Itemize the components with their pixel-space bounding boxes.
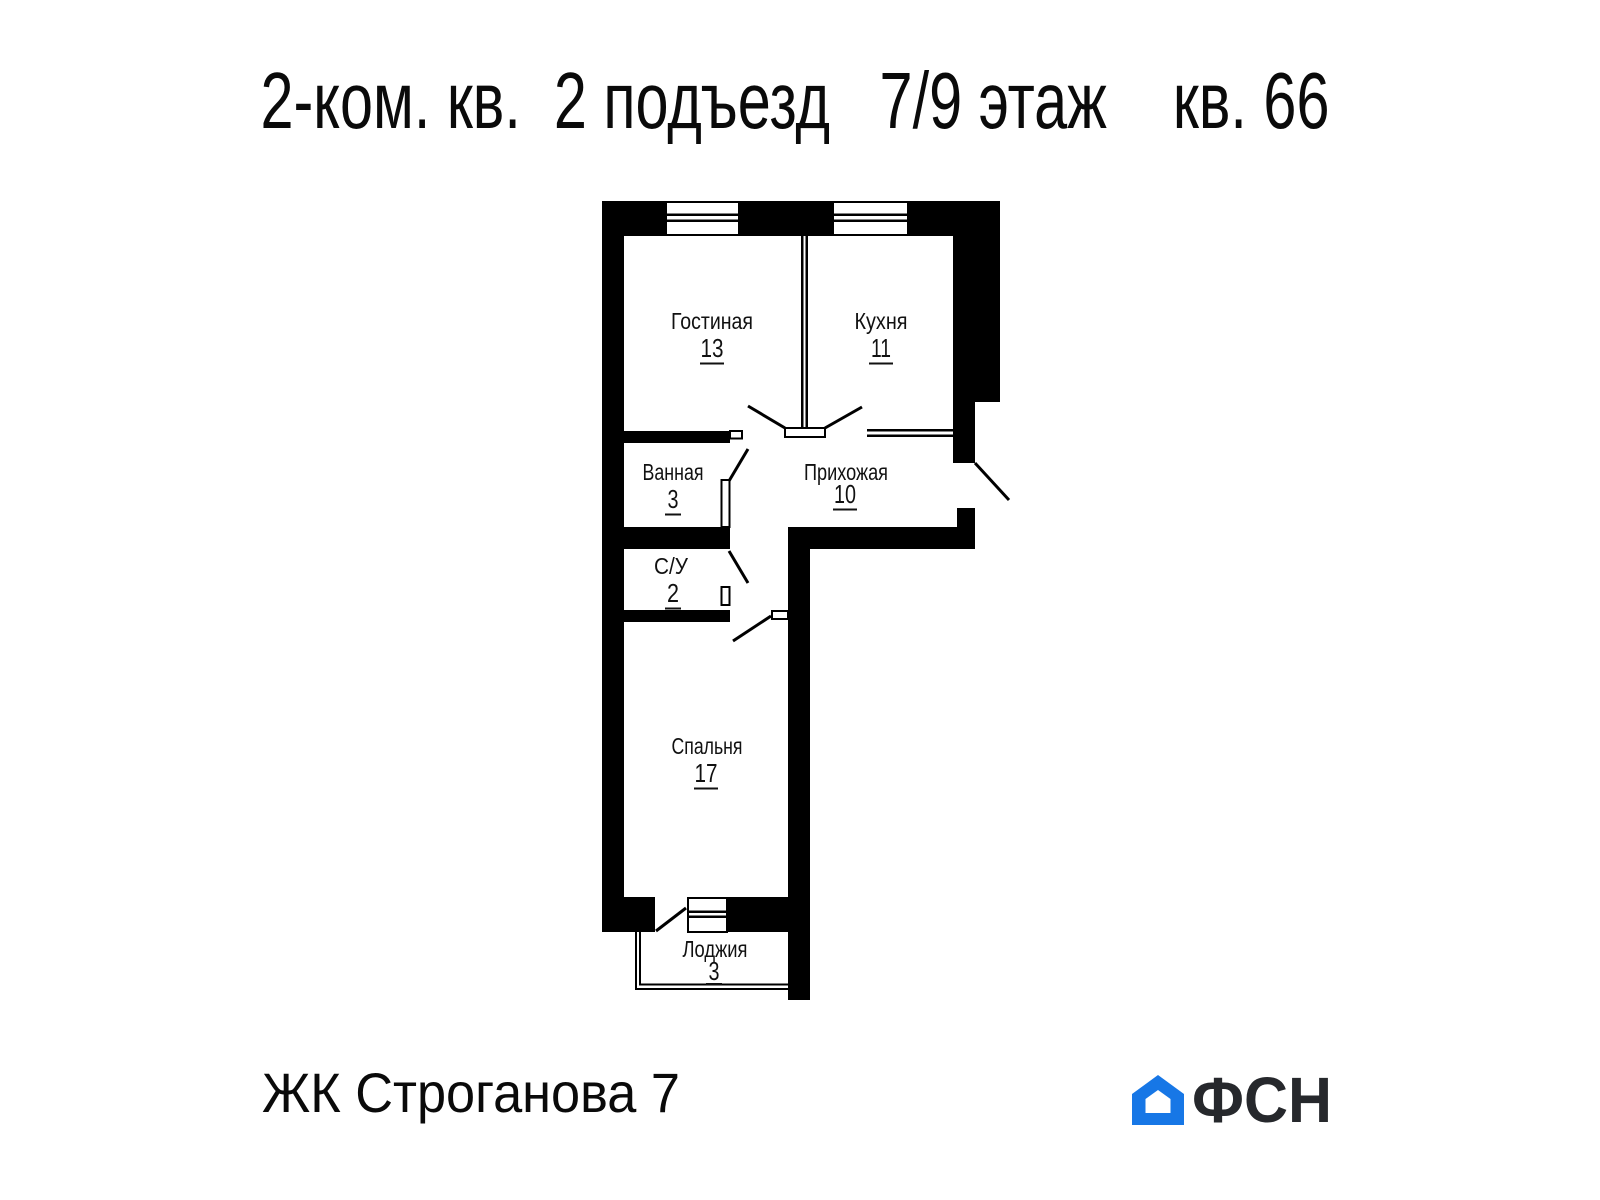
partition-base-jamb <box>785 428 825 437</box>
wall-wc-bottom <box>602 610 730 622</box>
balcony-door-swing <box>656 908 686 931</box>
wall-living-bottom <box>624 431 730 443</box>
room-label-bedroom: Спальня <box>672 733 743 759</box>
partition-line <box>801 236 804 431</box>
room-area-bedroom: 17 <box>695 758 718 788</box>
room-label-bath: Ванная <box>643 459 704 485</box>
partition-line <box>806 236 809 431</box>
wall-bedroom-bottom-left <box>624 897 655 932</box>
wall-top <box>602 201 1000 236</box>
kitchen-window <box>834 203 907 234</box>
room-labels: Гостиная 13 Кухня 11 Ванная 3 Прихожая 1… <box>643 308 908 986</box>
living-door-jamb <box>730 431 742 439</box>
bedroom-door-swing <box>733 616 771 641</box>
partitions <box>730 236 953 439</box>
footer: ЖК Строганова 7 ФСН <box>262 1061 1332 1136</box>
wall-left <box>602 201 624 932</box>
living-door-swing <box>748 406 785 428</box>
kitchen-door-swing <box>825 407 862 428</box>
living-window-glazing <box>667 214 738 217</box>
fsn-logo: ФСН <box>1132 1064 1332 1136</box>
room-area-bath: 3 <box>668 484 679 514</box>
kitchen-window-glazing <box>834 220 907 223</box>
complex-name: ЖК Строганова 7 <box>262 1061 680 1124</box>
living-window-glazing <box>667 220 738 223</box>
entrance-door-swing <box>975 463 1009 500</box>
room-label-wc: С/У <box>654 553 688 579</box>
wc-door-leaf <box>722 587 730 605</box>
kitchen-window-glazing <box>834 214 907 217</box>
balcony-window <box>688 898 727 932</box>
room-area-living: 13 <box>701 333 724 363</box>
wall-hall-bottom <box>788 527 975 549</box>
floorplan-page: 2-ком. кв. 2 подъезд 7/9 этаж кв. 66 <box>0 0 1600 1200</box>
wc-door-swing <box>729 551 748 583</box>
wall-right-mid <box>953 402 975 463</box>
room-area-kitchen: 11 <box>871 333 891 363</box>
room-area-loggia: 3 <box>709 956 720 986</box>
kitchen-wall-line <box>867 435 953 438</box>
page-title: 2-ком. кв. 2 подъезд 7/9 этаж кв. 66 <box>261 56 1330 145</box>
kitchen-wall-line <box>867 429 953 432</box>
living-window <box>667 203 738 234</box>
bath-door-leaf <box>722 480 730 527</box>
wall-right-upper <box>953 201 1000 402</box>
room-label-living: Гостиная <box>671 308 753 334</box>
floorplan-drawing: 2-ком. кв. 2 подъезд 7/9 этаж кв. 66 <box>0 0 1600 1200</box>
logo-text: ФСН <box>1192 1064 1332 1136</box>
wall-entry-stub <box>957 508 975 528</box>
wall-bath-wc <box>602 527 730 549</box>
room-area-hall: 10 <box>834 479 856 509</box>
wall-bedroom-bottom-right <box>727 897 810 932</box>
room-label-kitchen: Кухня <box>855 308 908 334</box>
balcony-window-glazing <box>688 911 727 914</box>
room-area-wc: 2 <box>667 578 679 608</box>
bath-door-swing <box>729 449 748 481</box>
balcony-window-glazing <box>688 916 727 919</box>
bedroom-door-jamb <box>772 611 788 619</box>
